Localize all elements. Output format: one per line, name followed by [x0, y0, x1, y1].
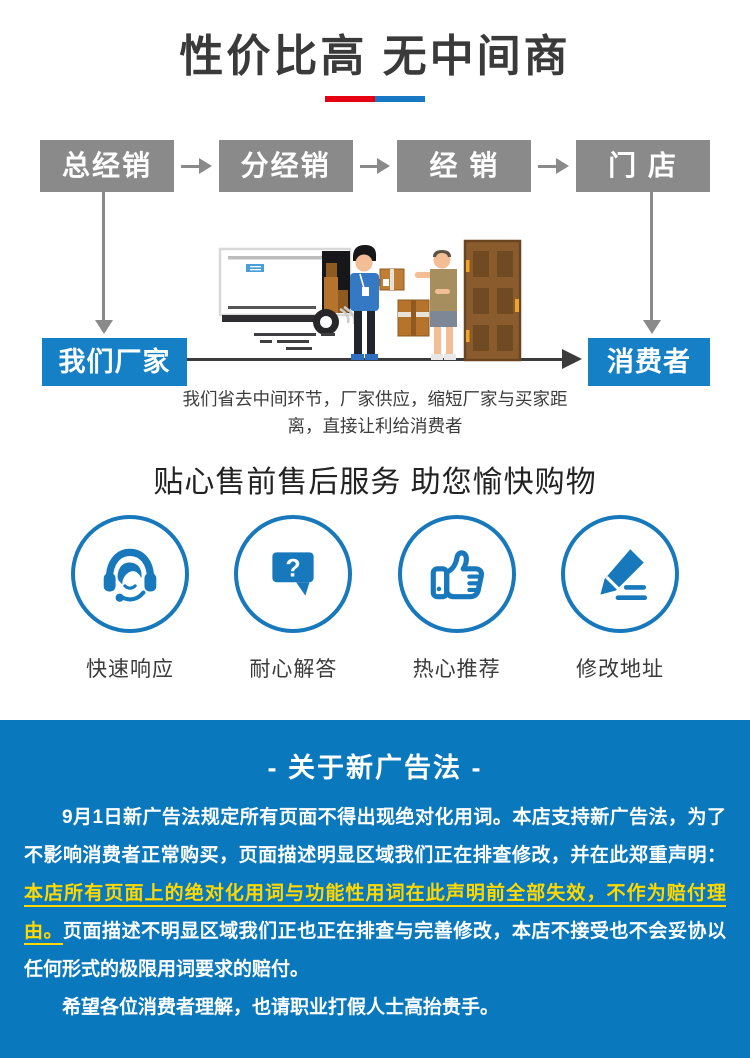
chain-box-store: 门 店: [576, 140, 710, 192]
service-item-recommend: 热心推荐: [392, 515, 522, 683]
connector-line-right: [650, 192, 653, 320]
flow-caption: 我们省去中间环节，厂家供应，缩短厂家与买家距离，直接让利给消费者: [175, 386, 575, 440]
page-title: 性价比高 无中间商: [0, 20, 750, 84]
service-item-patient-answer: ? 耐心解答: [228, 515, 358, 683]
chain-box-sub-distributor: 分经销: [219, 140, 353, 192]
notice-title: - 关于新广告法 -: [24, 746, 726, 785]
service-item-fast-response: 快速响应: [65, 515, 195, 683]
notice-closing-line: 希望各位消费者理解，也请职业打假人士高抬贵手。: [24, 989, 726, 1027]
service-label: 热心推荐: [413, 653, 501, 683]
distribution-chain: 总经销 分经销 经 销 门 店: [40, 140, 710, 192]
arrow-down-icon: [95, 320, 113, 334]
service-label: 修改地址: [576, 653, 664, 683]
service-label: 耐心解答: [249, 653, 337, 683]
arrow-down-icon: [643, 320, 661, 334]
underline-red-segment: [325, 96, 375, 102]
services-row: 快速响应 ? 耐心解答: [65, 515, 685, 683]
service-item-change-address: 修改地址: [555, 515, 685, 683]
arrow-right-icon: [531, 158, 576, 174]
consumer-box: 消费者: [588, 338, 710, 386]
underline-blue-segment: [375, 96, 425, 102]
notice-text-2: 页面描述不明显区域我们正也正在排查与完善修改，本店不接受也不会妥协以任何形式的极…: [24, 921, 726, 980]
delivery-illustration: [180, 227, 570, 363]
headset-icon: [71, 515, 189, 633]
arrow-right-icon: [353, 158, 398, 174]
chain-box-dealer: 经 销: [397, 140, 531, 192]
question-bubble-icon: ?: [234, 515, 352, 633]
services-title: 贴心售前售后服务 助您愉快购物: [0, 457, 750, 501]
new-ad-law-section: - 关于新广告法 - 9月1日新广告法规定所有页面不得出现绝对化用词。本店支持新…: [0, 720, 750, 1058]
promo-page: 性价比高 无中间商 总经销 分经销 经 销 门 店: [0, 0, 750, 1058]
chain-box-general-distributor: 总经销: [40, 140, 174, 192]
factory-box: 我们厂家: [42, 338, 187, 386]
service-label: 快速响应: [86, 653, 174, 683]
notice-paragraph: 9月1日新广告法规定所有页面不得出现绝对化用词。本店支持新广告法，为了不影响消费…: [24, 799, 726, 989]
pencil-icon: [561, 515, 679, 633]
thumbs-up-icon: [398, 515, 516, 633]
notice-text-1: 9月1日新广告法规定所有页面不得出现绝对化用词。本店支持新广告法，为了不影响消费…: [24, 807, 726, 866]
arrow-right-icon: [174, 158, 219, 174]
title-underline: [325, 96, 425, 102]
svg-text:?: ?: [286, 556, 301, 583]
connector-line-left: [102, 192, 105, 320]
